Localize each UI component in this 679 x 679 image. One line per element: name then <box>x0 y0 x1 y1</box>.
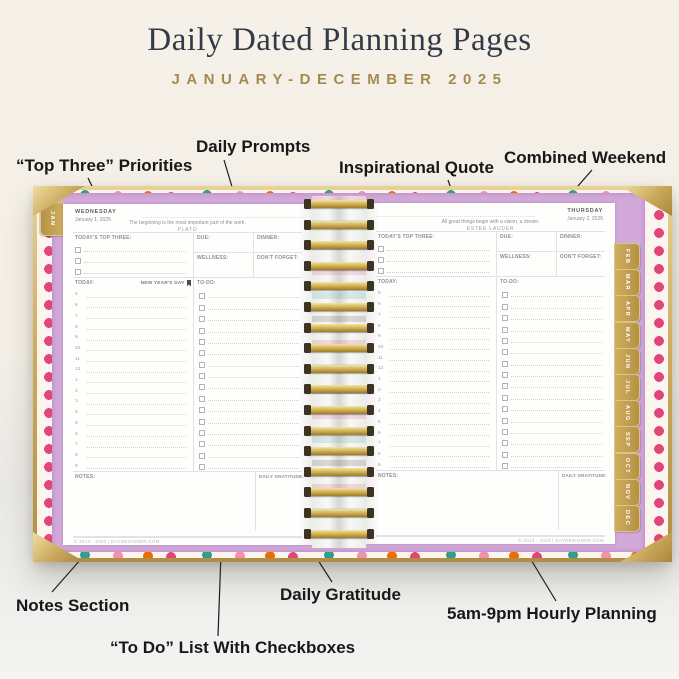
write-in-line <box>87 447 186 448</box>
notes-section: NOTES: DAILY GRATITUDE: <box>376 470 605 530</box>
hour-row: 12 <box>376 363 492 374</box>
write-in-line <box>390 317 489 318</box>
hour-row: 7 <box>376 309 492 320</box>
holiday-label: NEW YEAR'S DAY <box>141 281 185 286</box>
tab-feb: FEB <box>614 243 640 270</box>
todo-checkbox <box>199 362 205 368</box>
write-in-line <box>208 388 299 389</box>
todo-checkbox <box>502 304 508 310</box>
notes-section: NOTES: DAILY GRATITUDE: <box>73 471 302 531</box>
write-in-line <box>511 444 602 445</box>
write-in-line <box>87 350 186 351</box>
hour-row: 10 <box>73 343 189 354</box>
todo-row <box>197 323 302 334</box>
copyright: © 2012 - 2023 | DAYDESIGNER.COM <box>518 538 604 543</box>
today-label: TODAY: <box>378 279 397 285</box>
write-in-line <box>390 435 489 436</box>
write-in-line <box>87 436 186 437</box>
write-in-line <box>87 457 186 458</box>
write-in-line <box>208 457 299 458</box>
priority-row <box>376 242 492 253</box>
spiral-ring <box>306 447 372 455</box>
todo-row <box>500 288 605 299</box>
callout-hourly-planning: 5am-9pm Hourly Planning <box>447 604 657 624</box>
write-in-line <box>390 392 489 393</box>
tab-jul: JUL <box>614 374 640 401</box>
hour-row: 5 <box>376 288 492 299</box>
todo-checkbox <box>502 429 508 435</box>
hour-row: 6 <box>73 300 189 311</box>
planner-book: JAN WEDNESDAY January 1, 2025 The beginn… <box>33 186 672 562</box>
write-in-line <box>208 411 299 412</box>
todo-row <box>500 299 605 310</box>
write-in-line <box>511 353 602 354</box>
priority-checkbox <box>75 247 81 253</box>
todo-checkbox <box>199 305 205 311</box>
hour-row: 10 <box>376 342 492 353</box>
hour-row: 8 <box>376 320 492 331</box>
spiral-ring <box>306 406 372 414</box>
header-rule <box>143 217 302 218</box>
dinner-label: DINNER: <box>257 235 279 241</box>
write-in-line <box>390 360 489 361</box>
callout-top-three-priorities: “Top Three” Priorities <box>16 156 192 176</box>
write-in-line <box>511 376 602 377</box>
todo-row <box>197 289 302 300</box>
spiral-ring <box>306 530 372 538</box>
todo-row <box>500 356 605 367</box>
hour-row: 6 <box>73 428 189 439</box>
hour-row: 9 <box>73 332 189 343</box>
hour-row: 9 <box>73 460 189 471</box>
todo-checkbox <box>199 384 205 390</box>
write-in-line <box>208 343 299 344</box>
todo-row <box>197 426 302 437</box>
todo-row <box>500 322 605 333</box>
write-in-line <box>390 328 489 329</box>
wellness-label: WELLNESS: <box>197 255 228 261</box>
hourly-rows: 56789101112123456789 <box>376 288 492 470</box>
tab-aug: AUG <box>614 400 640 427</box>
todo-checkbox <box>502 327 508 333</box>
hour-row: 3 <box>376 395 492 406</box>
hour-row: 9 <box>376 331 492 342</box>
todo-row <box>197 380 302 391</box>
spiral-ring <box>306 468 372 476</box>
write-in-line <box>390 371 489 372</box>
todo-row <box>500 459 605 470</box>
holiday: NEW YEAR'S DAY <box>123 280 191 287</box>
write-in-line <box>208 297 299 298</box>
tab-apr: APR <box>614 295 640 322</box>
todo-row <box>197 369 302 380</box>
hour-row: 1 <box>73 375 189 386</box>
schedule-section: TODAY: TO-DO: 56789101112123456789 <box>376 276 605 470</box>
hour-label: 9 <box>73 465 84 471</box>
day-name: THURSDAY <box>567 208 603 214</box>
write-in-line <box>87 382 186 383</box>
dinner-label: DINNER: <box>560 234 582 240</box>
todo-checkbox <box>199 373 205 379</box>
page-title: Daily Dated Planning Pages <box>0 22 679 59</box>
todo-checkbox <box>502 463 508 469</box>
spiral-ring <box>306 365 372 373</box>
top-three-label: TODAY'S TOP THREE: <box>378 234 435 240</box>
priority-row <box>376 253 492 264</box>
todo-checkbox <box>502 452 508 458</box>
callout-daily-prompts: Daily Prompts <box>196 137 310 157</box>
priority-row <box>73 265 189 276</box>
write-in-line <box>87 372 186 373</box>
priority-checkbox <box>75 269 81 275</box>
write-in-line <box>84 251 186 252</box>
top-three-rows <box>73 243 189 276</box>
tab-dec: DEC <box>614 505 640 532</box>
hour-row: 9 <box>376 459 492 470</box>
todo-checkbox <box>502 440 508 446</box>
write-in-line <box>390 339 489 340</box>
write-in-line <box>87 329 186 330</box>
write-in-line <box>387 272 489 273</box>
todo-row <box>500 334 605 345</box>
write-in-line <box>390 306 489 307</box>
write-in-line <box>208 377 299 378</box>
dont-forget-label: DON'T FORGET: <box>560 254 601 260</box>
write-in-line <box>511 456 602 457</box>
todo-checkbox <box>199 430 205 436</box>
todo-checkbox <box>199 339 205 345</box>
hour-row: 5 <box>376 416 492 427</box>
write-in-line <box>208 445 299 446</box>
todo-checkbox <box>199 441 205 447</box>
hourly-rows: 56789101112123456789 <box>73 289 189 471</box>
todo-row <box>197 312 302 323</box>
write-in-line <box>87 307 186 308</box>
spiral-ring <box>306 427 372 435</box>
hour-row: 8 <box>73 450 189 461</box>
todo-row <box>197 391 302 402</box>
hour-row: 11 <box>73 353 189 364</box>
prompts-section: TODAY'S TOP THREE: DUE: DINNER: WELLNESS… <box>73 232 302 277</box>
todo-row <box>500 311 605 322</box>
write-in-line <box>511 365 602 366</box>
todo-checkbox <box>199 407 205 413</box>
write-in-line <box>87 297 186 298</box>
write-in-line <box>511 331 602 332</box>
priority-checkbox <box>75 258 81 264</box>
todo-checkbox <box>502 315 508 321</box>
priority-checkbox <box>378 268 384 274</box>
schedule-section: TODAY: NEW YEAR'S DAY TO-DO: 56789101112… <box>73 277 302 471</box>
write-in-line <box>390 467 489 468</box>
tab-sep: SEP <box>614 426 640 453</box>
copyright: © 2012 - 2023 | DAYDESIGNER.COM <box>74 539 160 544</box>
holiday-flag-icon <box>187 280 192 287</box>
tab-nov: NOV <box>614 479 640 506</box>
todo-checkbox <box>502 418 508 424</box>
priority-row <box>376 264 492 275</box>
write-in-line <box>208 434 299 435</box>
callout-notes-section: Notes Section <box>16 596 129 616</box>
hour-row: 6 <box>376 299 492 310</box>
todo-checkbox <box>199 419 205 425</box>
spiral-ring <box>306 303 372 311</box>
todo-row <box>500 425 605 436</box>
hour-row: 2 <box>376 384 492 395</box>
write-in-line <box>511 319 602 320</box>
priority-checkbox <box>378 246 384 252</box>
write-in-line <box>390 424 489 425</box>
write-in-line <box>511 422 602 423</box>
hour-row: 8 <box>376 449 492 460</box>
todo-rows <box>500 288 605 470</box>
todo-row <box>500 390 605 401</box>
todo-checkbox <box>199 316 205 322</box>
todo-row <box>500 413 605 424</box>
write-in-line <box>87 393 186 394</box>
todo-row <box>500 368 605 379</box>
todo-row <box>197 403 302 414</box>
gratitude-label: DAILY GRATITUDE: <box>259 474 304 479</box>
write-in-line <box>208 400 299 401</box>
hour-row: 7 <box>73 439 189 450</box>
write-in-line <box>208 354 299 355</box>
write-in-line <box>208 468 299 469</box>
todo-checkbox <box>502 349 508 355</box>
hour-row: 7 <box>73 310 189 321</box>
todo-rows <box>197 289 302 471</box>
hour-row: 1 <box>376 374 492 385</box>
today-label: TODAY: <box>75 280 94 286</box>
write-in-line <box>390 446 489 447</box>
spiral-ring <box>306 509 372 517</box>
write-in-line <box>511 342 602 343</box>
callout-daily-gratitude: Daily Gratitude <box>280 585 401 605</box>
write-in-line <box>84 273 186 274</box>
todo-checkbox <box>502 383 508 389</box>
todo-checkbox <box>502 292 508 298</box>
tab-may: MAY <box>614 322 640 349</box>
todo-checkbox <box>199 453 205 459</box>
todo-row <box>500 379 605 390</box>
todo-row <box>197 346 302 357</box>
todo-row <box>197 357 302 368</box>
spiral-ring <box>306 344 372 352</box>
spiral-ring <box>306 200 372 208</box>
tab-oct: OCT <box>614 453 640 480</box>
todo-checkbox <box>199 396 205 402</box>
todo-checkbox <box>502 361 508 367</box>
todo-row <box>197 300 302 311</box>
spiral-ring <box>306 385 372 393</box>
hour-row: 3 <box>73 396 189 407</box>
todo-row <box>197 414 302 425</box>
hour-row: 11 <box>376 352 492 363</box>
planner-page-left: WEDNESDAY January 1, 2025 The beginning … <box>63 204 312 545</box>
todo-label: TO-DO: <box>500 279 519 285</box>
planner-page-right: THURSDAY January 2, 2025 All great thing… <box>366 203 615 544</box>
page-subtitle: JANUARY-DECEMBER 2025 <box>0 71 679 88</box>
write-in-line <box>390 403 489 404</box>
write-in-line <box>511 387 602 388</box>
priority-row <box>73 243 189 254</box>
write-in-line <box>208 320 299 321</box>
write-in-line <box>511 433 602 434</box>
todo-checkbox <box>502 406 508 412</box>
todo-row <box>500 436 605 447</box>
todo-checkbox <box>502 338 508 344</box>
spiral-ring <box>306 488 372 496</box>
todo-checkbox <box>199 328 205 334</box>
write-in-line <box>390 413 489 414</box>
hour-row: 5 <box>73 289 189 300</box>
todo-row <box>197 460 302 471</box>
write-in-line <box>84 262 186 263</box>
hour-row: 4 <box>73 407 189 418</box>
write-in-line <box>87 318 186 319</box>
spiral-ring <box>306 262 372 270</box>
write-in-line <box>511 308 602 309</box>
write-in-line <box>387 250 489 251</box>
write-in-line <box>87 425 186 426</box>
callout-inspirational-quote: Inspirational Quote <box>339 158 494 178</box>
write-in-line <box>208 332 299 333</box>
write-in-line <box>87 340 186 341</box>
callout-combined-weekend: Combined Weekend <box>504 148 666 168</box>
header-rule <box>376 216 535 217</box>
write-in-line <box>390 296 489 297</box>
spiral-ring <box>306 241 372 249</box>
todo-checkbox <box>199 350 205 356</box>
day-name: WEDNESDAY <box>75 209 117 215</box>
spiral-ring <box>306 282 372 290</box>
todo-row <box>500 345 605 356</box>
write-in-line <box>87 414 186 415</box>
write-in-line <box>208 423 299 424</box>
tab-jun: JUN <box>614 348 640 375</box>
hour-row: 12 <box>73 364 189 375</box>
prompts-section: TODAY'S TOP THREE: DUE: DINNER: WELLNESS… <box>376 231 605 276</box>
write-in-line <box>390 456 489 457</box>
write-in-line <box>87 468 186 469</box>
write-in-line <box>208 309 299 310</box>
write-in-line <box>208 366 299 367</box>
write-in-line <box>390 381 489 382</box>
top-three-rows <box>376 242 492 275</box>
todo-checkbox <box>199 293 205 299</box>
write-in-line <box>387 261 489 262</box>
write-in-line <box>511 410 602 411</box>
hour-row: 5 <box>73 417 189 428</box>
hour-row: 8 <box>73 321 189 332</box>
tab-mar: MAR <box>614 269 640 296</box>
write-in-line <box>511 296 602 297</box>
notes-label: NOTES: <box>75 474 95 480</box>
dont-forget-label: DON'T FORGET: <box>257 255 298 261</box>
hour-row: 7 <box>376 438 492 449</box>
todo-checkbox <box>199 464 205 470</box>
spiral-ring <box>306 324 372 332</box>
write-in-line <box>390 349 489 350</box>
spiral-ring <box>306 221 372 229</box>
hour-row: 4 <box>376 406 492 417</box>
write-in-line <box>87 404 186 405</box>
due-label: DUE: <box>197 235 210 241</box>
todo-row <box>500 447 605 458</box>
hour-row: 2 <box>73 385 189 396</box>
callout-todo-list: “To Do” List With Checkboxes <box>110 638 355 658</box>
todo-checkbox <box>502 395 508 401</box>
write-in-line <box>87 361 186 362</box>
todo-row <box>500 402 605 413</box>
due-label: DUE: <box>500 234 513 240</box>
priority-checkbox <box>378 257 384 263</box>
hour-label: 9 <box>376 464 387 470</box>
notes-label: NOTES: <box>378 473 398 479</box>
priority-row <box>73 254 189 265</box>
todo-checkbox <box>502 372 508 378</box>
gratitude-label: DAILY GRATITUDE: <box>562 473 607 478</box>
write-in-line <box>511 399 602 400</box>
todo-row <box>197 335 302 346</box>
hour-row: 6 <box>376 427 492 438</box>
todo-label: TO-DO: <box>197 280 216 286</box>
todo-row <box>197 437 302 448</box>
todo-row <box>197 448 302 459</box>
wellness-label: WELLNESS: <box>500 254 531 260</box>
top-three-label: TODAY'S TOP THREE: <box>75 235 132 241</box>
write-in-line <box>511 467 602 468</box>
